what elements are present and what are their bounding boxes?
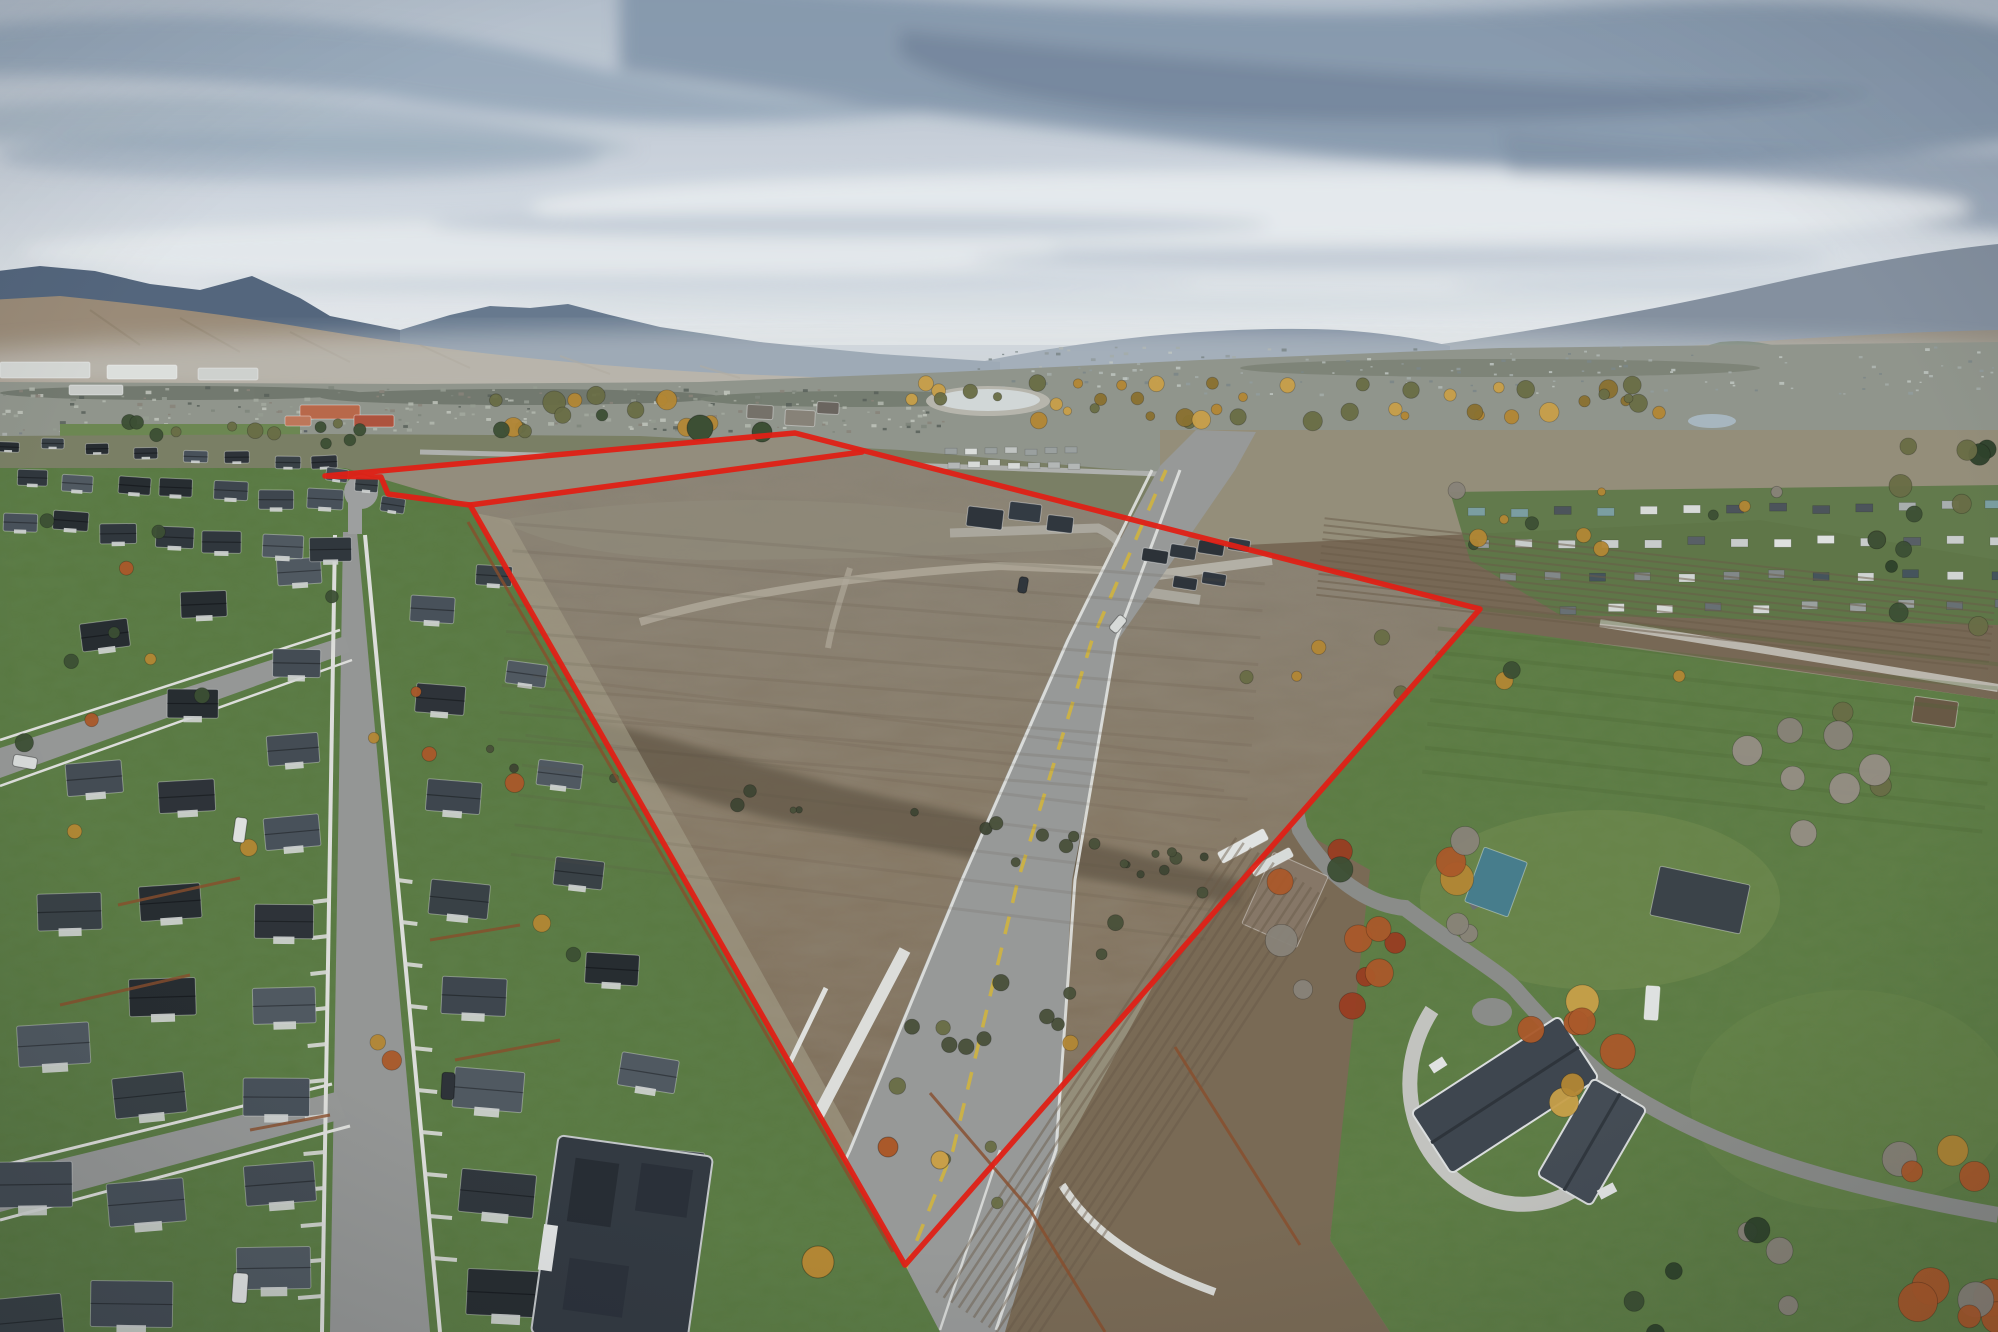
aerial-photo-canvas xyxy=(0,0,1998,1332)
aerial-photo: Aerial drone photo of a large vacant dev… xyxy=(0,0,1998,1332)
vignette xyxy=(0,0,1998,1332)
